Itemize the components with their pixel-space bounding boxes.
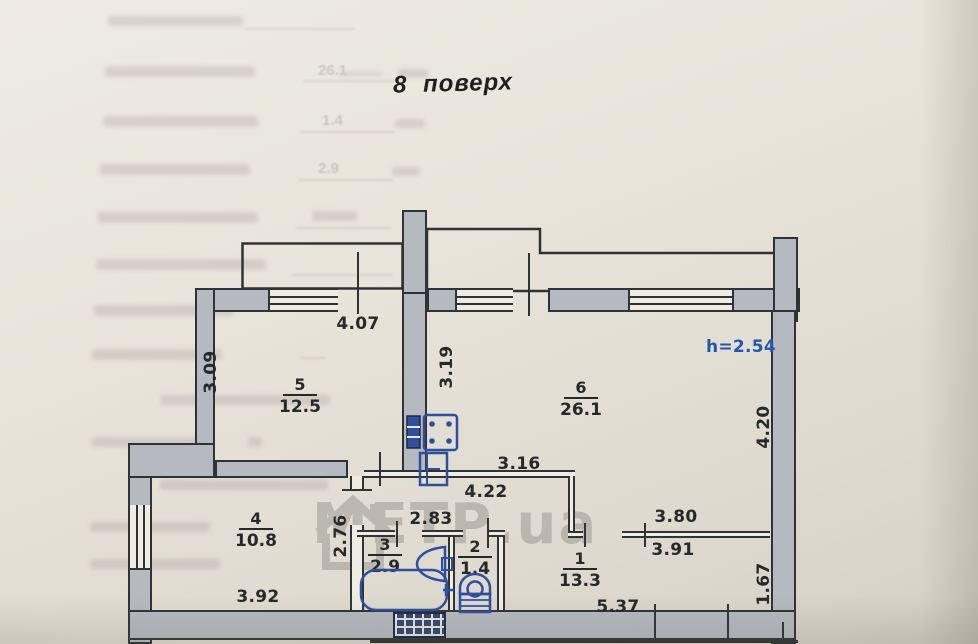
stove-icon	[424, 415, 457, 450]
wash-basin-icon	[417, 547, 452, 581]
scanned-floor-plan-page: { "title": "8 поверх", "bleed_form": { "…	[0, 0, 978, 644]
toilet-icon	[460, 574, 490, 612]
bathtub-icon	[361, 570, 454, 610]
kitchen-sink-icon	[420, 453, 447, 485]
electric-panel-icon	[407, 416, 420, 448]
fixtures-layer	[0, 0, 978, 644]
vent-shaft-icon	[393, 612, 446, 638]
